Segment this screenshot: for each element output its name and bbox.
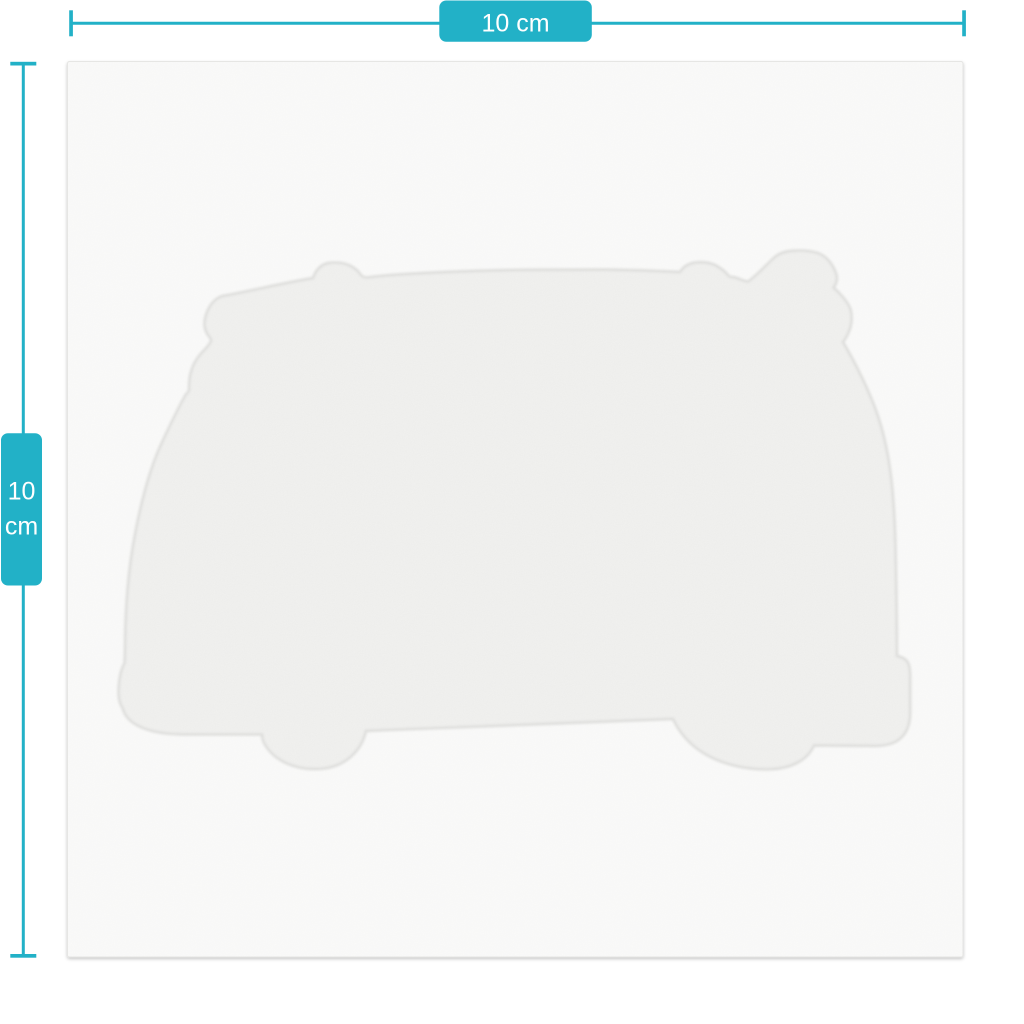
svg-text:10 cm: 10 cm — [481, 10, 549, 38]
svg-text:10: 10 — [8, 478, 36, 506]
svg-text:cm: cm — [5, 513, 38, 541]
